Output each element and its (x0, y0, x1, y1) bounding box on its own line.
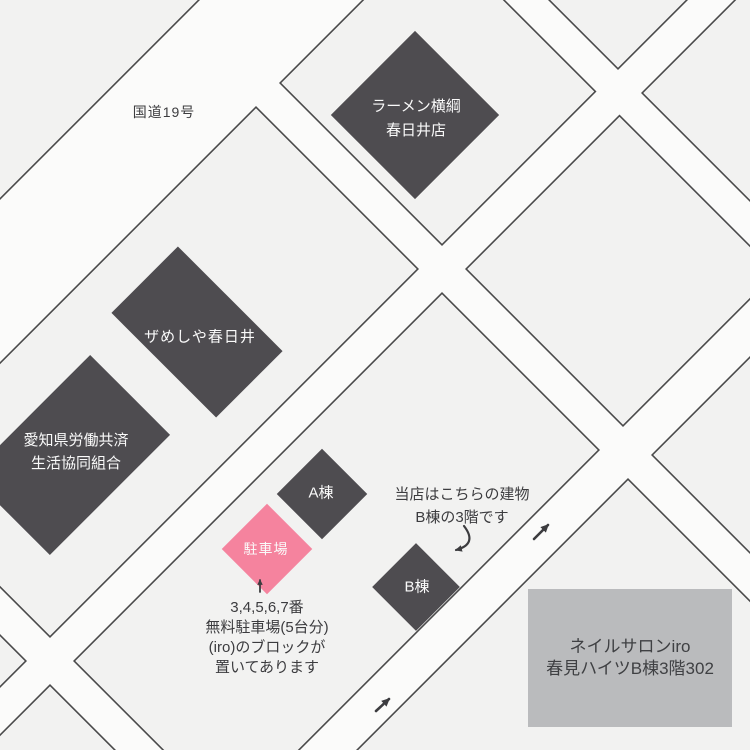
aichi-coop-building (0, 355, 170, 555)
parking-lot (222, 504, 313, 595)
building-a (277, 449, 368, 540)
map-canvas (0, 0, 750, 750)
curved-pointer-arrow-icon (456, 526, 469, 550)
access-map: 国道19号 ラーメン横綱 春日井店 ザめしや春日井 愛知県労働共済 生活協同組合… (0, 0, 750, 750)
zameshiya-building (111, 246, 282, 417)
road-diag-se-topright-surface (400, 0, 750, 375)
info-box (528, 589, 732, 727)
